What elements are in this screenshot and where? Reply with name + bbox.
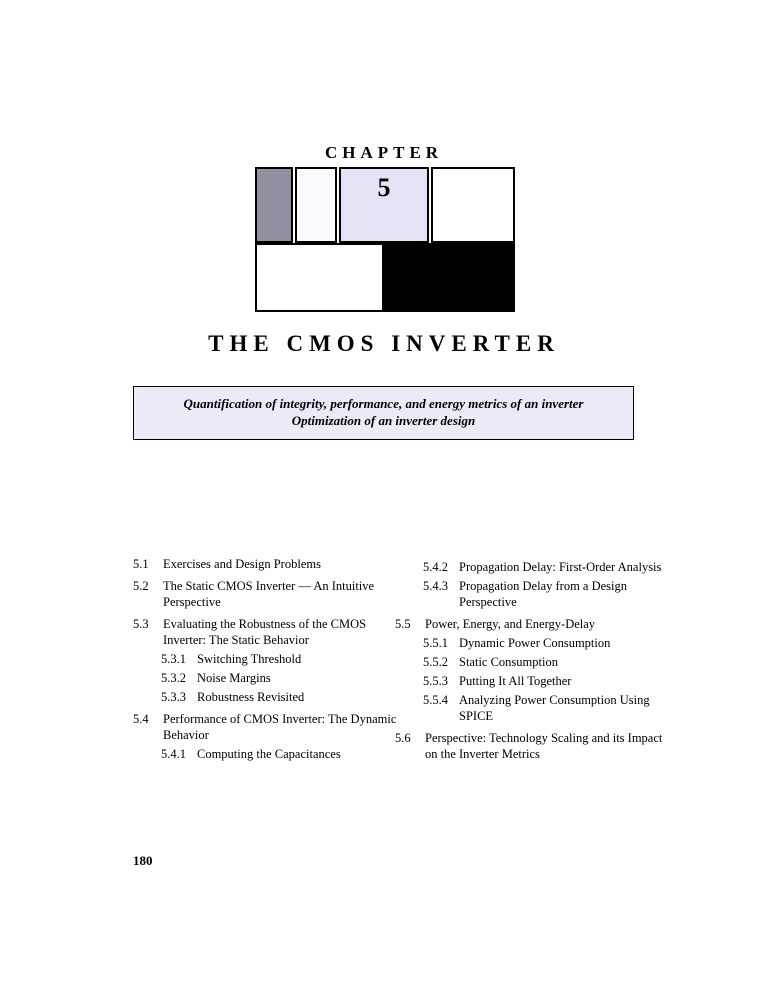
toc-item: 5.6Perspective: Technology Scaling and i…	[395, 730, 665, 762]
toc-item: 5.3.2Noise Margins	[133, 670, 399, 686]
chapter-artwork: 5	[255, 167, 515, 312]
toc-item: 5.5.2Static Consumption	[395, 654, 665, 670]
toc-item: 5.5.3Putting It All Together	[395, 673, 665, 689]
toc-item-label: Perspective: Technology Scaling and its …	[425, 730, 665, 762]
toc-right-column: 5.4.2Propagation Delay: First-Order Anal…	[395, 556, 665, 762]
toc-item-label: Dynamic Power Consumption	[459, 635, 665, 651]
toc-item: 5.4.2Propagation Delay: First-Order Anal…	[395, 559, 665, 575]
toc-item-number: 5.5	[395, 616, 425, 632]
toc-item: 5.5.1Dynamic Power Consumption	[395, 635, 665, 651]
toc-item-number: 5.3.3	[161, 689, 197, 705]
toc-item: 5.4Performance of CMOS Inverter: The Dyn…	[133, 711, 399, 743]
toc-left-column: 5.1Exercises and Design Problems5.2The S…	[133, 556, 399, 762]
toc-item-number: 5.4.1	[161, 746, 197, 762]
toc-item: 5.3Evaluating the Robustness of the CMOS…	[133, 616, 399, 648]
toc-item: 5.1Exercises and Design Problems	[133, 556, 399, 572]
toc-item-number: 5.3.2	[161, 670, 197, 686]
artwork-pale-cell	[295, 167, 337, 243]
artwork-gray-cell	[255, 167, 293, 243]
summary-line-1: Quantification of integrity, performance…	[134, 395, 633, 412]
toc-item-label: Power, Energy, and Energy-Delay	[425, 616, 665, 632]
page-number: 180	[133, 853, 153, 869]
toc-item: 5.3.3Robustness Revisited	[133, 689, 399, 705]
artwork-white-cell	[431, 167, 515, 243]
toc-item: 5.5Power, Energy, and Energy-Delay	[395, 616, 665, 632]
toc-item-label: Exercises and Design Problems	[163, 556, 399, 572]
chapter-number: 5	[341, 175, 427, 201]
toc-item: 5.4.1Computing the Capacitances	[133, 746, 399, 762]
summary-line-2: Optimization of an inverter design	[134, 412, 633, 429]
toc-item-label: Switching Threshold	[197, 651, 399, 667]
toc-item: 5.2The Static CMOS Inverter — An Intuiti…	[133, 578, 399, 610]
toc-item-label: Evaluating the Robustness of the CMOS In…	[163, 616, 399, 648]
toc-item-number: 5.6	[395, 730, 425, 762]
toc-item-number: 5.1	[133, 556, 163, 572]
toc-item-label: Static Consumption	[459, 654, 665, 670]
toc-item-label: Propagation Delay from a Design Perspect…	[459, 578, 665, 610]
artwork-top-row: 5	[255, 167, 515, 243]
chapter-heading: CHAPTER	[0, 143, 768, 163]
toc-item-number: 5.5.1	[423, 635, 459, 651]
toc-item-label: The Static CMOS Inverter — An Intuitive …	[163, 578, 399, 610]
toc-item-number: 5.4.2	[423, 559, 459, 575]
toc-item-label: Analyzing Power Consumption Using SPICE	[459, 692, 665, 724]
toc-item-number: 5.5.2	[423, 654, 459, 670]
artwork-bottom-white-cell	[255, 243, 384, 312]
toc-item-number: 5.5.3	[423, 673, 459, 689]
toc-item-number: 5.3.1	[161, 651, 197, 667]
artwork-number-cell: 5	[339, 167, 429, 243]
toc-item-number: 5.2	[133, 578, 163, 610]
toc-item-number: 5.4	[133, 711, 163, 743]
toc-item-number: 5.5.4	[423, 692, 459, 724]
artwork-bottom-black-cell	[384, 243, 515, 312]
toc-item: 5.3.1Switching Threshold	[133, 651, 399, 667]
toc-item-label: Putting It All Together	[459, 673, 665, 689]
artwork-bottom-row	[255, 243, 515, 312]
toc-item: 5.5.4Analyzing Power Consumption Using S…	[395, 692, 665, 724]
book-page: CHAPTER 5 THE CMOS INVERTER Quantificati…	[0, 0, 768, 994]
toc-item-label: Propagation Delay: First-Order Analysis	[459, 559, 665, 575]
summary-box: Quantification of integrity, performance…	[133, 386, 634, 440]
toc-item-number: 5.3	[133, 616, 163, 648]
toc-item-number: 5.4.3	[423, 578, 459, 610]
toc-item: 5.4.3Propagation Delay from a Design Per…	[395, 578, 665, 610]
toc-item-label: Noise Margins	[197, 670, 399, 686]
chapter-title: THE CMOS INVERTER	[0, 331, 768, 357]
toc-item-label: Performance of CMOS Inverter: The Dynami…	[163, 711, 399, 743]
toc-item-label: Computing the Capacitances	[197, 746, 399, 762]
toc-item-label: Robustness Revisited	[197, 689, 399, 705]
